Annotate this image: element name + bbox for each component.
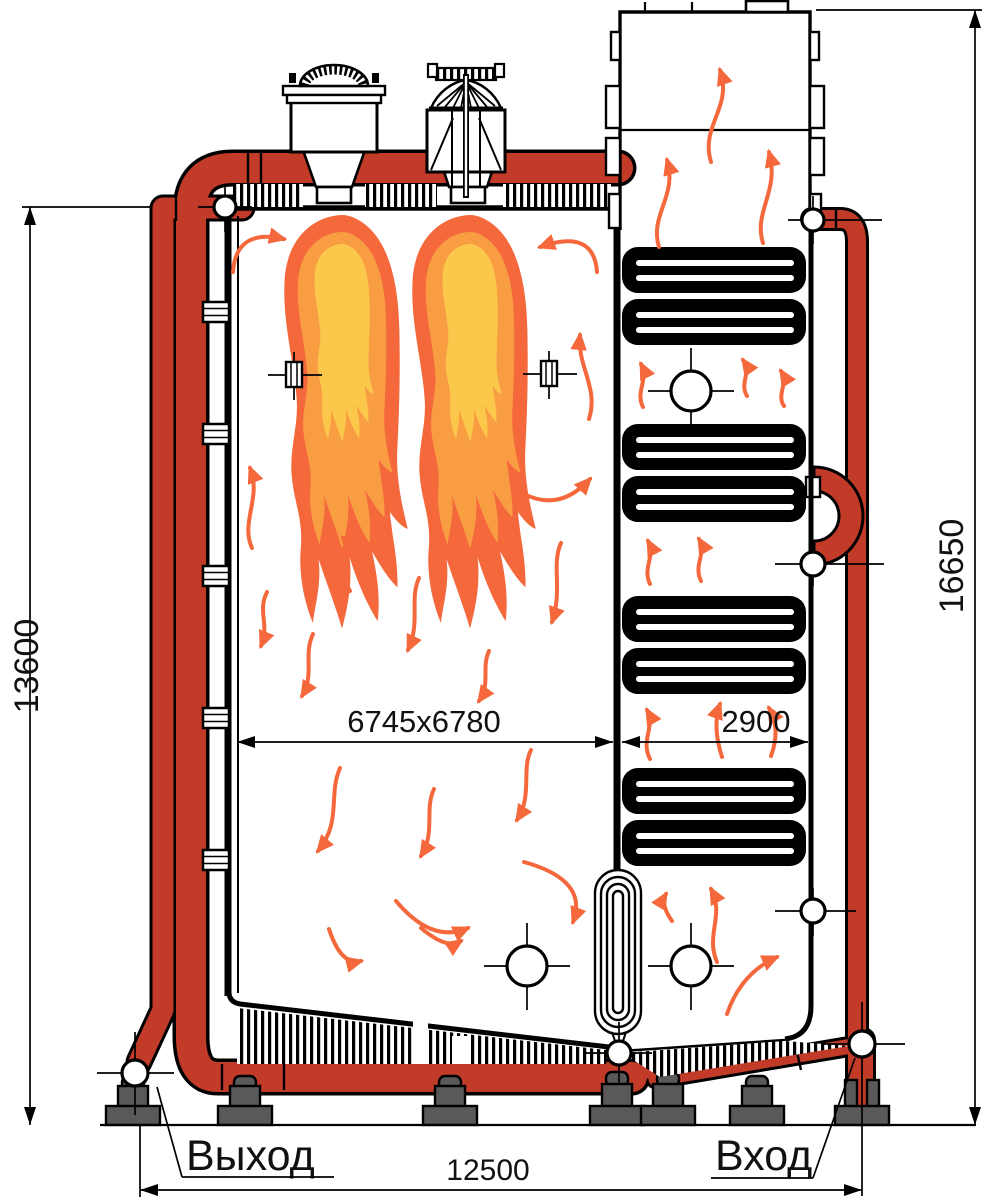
dimension-right-height: 16650 [933,10,981,1125]
flow-arrow [647,710,650,759]
flow-arrow [302,634,313,696]
crosshair-marker [648,923,734,1010]
flame-core-layer [442,244,501,442]
flow-arrow [552,543,561,622]
flow-arrow [657,160,670,247]
flow-arrow [743,360,747,396]
top-fins [233,184,303,207]
flow-arrow [517,750,531,820]
flow-arrow [727,957,777,1014]
burner-flames [284,215,536,629]
flow-arrow [318,768,340,851]
inlet-label: Вход [715,1132,812,1180]
crosshair-marker [775,888,856,936]
flow-arrow [524,479,590,500]
top-fins [503,184,611,207]
fin-notch [413,1020,428,1064]
flow-arrow [580,335,592,419]
coil-bank [622,424,806,470]
outlet-label: Выход [186,1132,315,1180]
flow-arrow [711,889,717,962]
wall-clip [203,708,229,728]
dimension-text-left-height: 13600 [8,619,46,714]
flow-arrow [709,70,723,162]
flow-arrow [540,241,597,272]
flame-right [412,215,536,629]
coil-bank [622,768,806,814]
flow-arrow [524,862,576,922]
flow-arrow [233,237,284,272]
flame-core-layer [314,244,373,442]
top-header-pipe-outline [191,168,632,1077]
dimension-text-furnace-width: 6745x6780 [347,704,500,739]
fin-notch [452,1036,469,1064]
flow-arrow [640,364,643,407]
flow-arrow [664,894,672,921]
sight-port [523,351,577,399]
flow-arrow [479,651,489,701]
flow-arrow [248,468,253,548]
crosshair-marker [484,923,570,1010]
furnace-ceiling [231,208,612,213]
wall-clip [203,566,229,586]
dimension-furnace-width: 6745x6780 [237,704,613,748]
coil-bank [622,247,806,293]
coil-bank [622,476,806,522]
flow-arrow [421,789,434,856]
coil-bank [622,648,806,694]
flow-arrow [647,541,650,584]
coil-bank [622,820,806,866]
support-foot [730,1076,784,1125]
wall-clip [203,424,229,444]
riser-pipe [812,219,857,1098]
dimension-text-gas-duct-width: 2900 [722,704,791,739]
flow-arrow [761,152,772,243]
dimension-text-right-height: 16650 [933,519,971,614]
boiler-sectional-drawing: 13600 16650 6745x6780 2900 12500 Выход В… [0,0,984,1200]
dimension-text-base-width: 12500 [446,1154,529,1187]
flow-arrow [261,592,267,646]
flow-arrow [396,901,468,932]
crosshair-marker [97,1032,174,1115]
chimney-top-flange [746,1,788,12]
divider-wall-loop [595,870,641,1044]
coil-bank [622,596,806,642]
flow-arrow [698,539,701,581]
wall-clip [203,302,229,322]
top-fins [365,184,437,207]
flow-arrow [408,578,419,650]
crosshair-marker [648,348,734,434]
wall-clip [203,850,229,870]
dimension-left-height: 13600 [8,207,46,1125]
flow-arrow [781,371,784,406]
coil-bank [622,299,806,345]
flow-arrow [329,929,361,962]
boiler-drawing-page: 13600 16650 6745x6780 2900 12500 Выход В… [0,0,984,1200]
top-header-pipe [191,168,632,1077]
